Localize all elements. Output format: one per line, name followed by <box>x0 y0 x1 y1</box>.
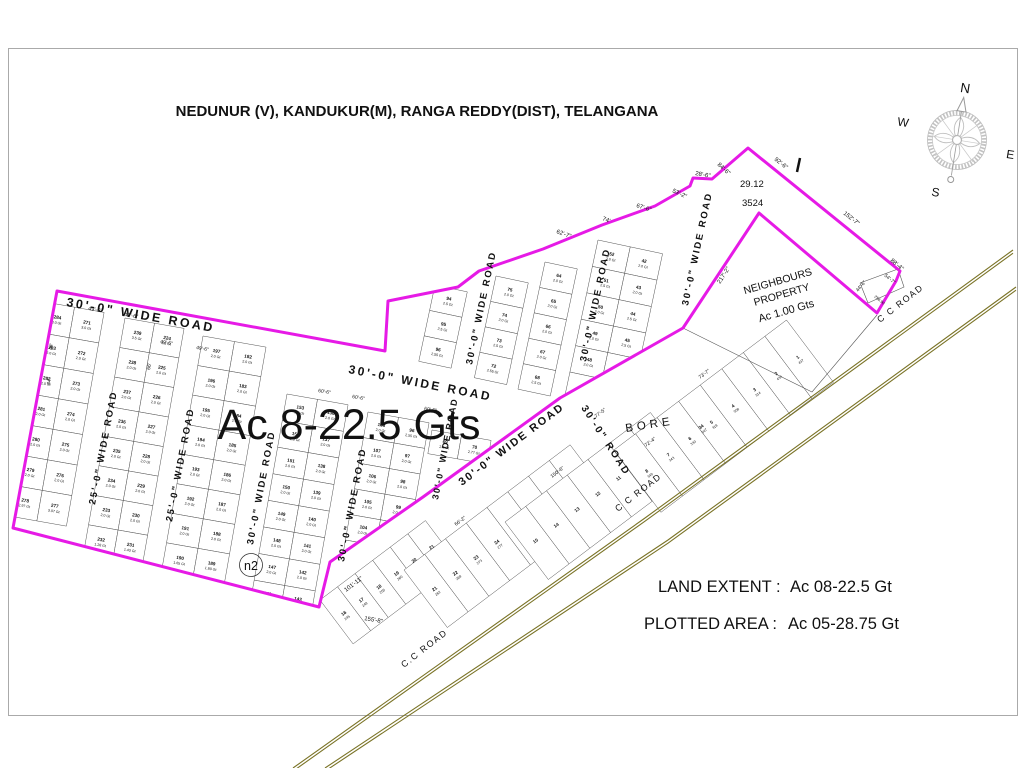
plot-cell <box>198 336 235 371</box>
plot-cell <box>203 489 240 524</box>
dimension-label: 66' <box>146 363 153 371</box>
plot-cell <box>273 447 308 479</box>
plot-cell <box>285 559 320 591</box>
plot-cell <box>115 348 150 383</box>
plot-cell <box>193 366 230 401</box>
plot-cell <box>259 527 294 559</box>
plot-cell <box>37 490 72 526</box>
land-extent-value: Ac 08-22.5 Gt <box>790 578 892 596</box>
plot-cell <box>303 453 338 485</box>
plot-cell <box>123 471 158 506</box>
plot-cell <box>299 479 334 511</box>
survey-plan-page: { "title": "NEDUNUR (V), KANDUKUR(M), RA… <box>0 0 1024 768</box>
dimension-label: 44' <box>46 378 53 386</box>
plot-cell <box>208 460 245 495</box>
total-area-overlay: Ac 8-22.5 Gts <box>218 401 481 449</box>
plot-cell <box>64 338 99 374</box>
plot-cell <box>42 460 77 496</box>
plot-cell <box>229 342 266 377</box>
plot-cell <box>198 519 235 554</box>
plot-cell <box>118 500 153 535</box>
plotted-area-label: PLOTTED AREA : <box>644 615 777 633</box>
land-extent-label: LAND EXTENT : <box>658 578 781 596</box>
plot-cell <box>53 399 88 435</box>
plot-cell <box>264 500 299 532</box>
survey-number-b: 3524 <box>742 198 763 209</box>
plot-cell <box>294 506 329 538</box>
svg-text:n2: n2 <box>244 559 258 573</box>
plot-cell <box>128 441 163 476</box>
dimension-label: 44' <box>48 343 55 351</box>
survey-number-a: 29.12 <box>740 179 764 190</box>
plot-cell <box>254 554 289 586</box>
south-tail <box>947 176 954 183</box>
plot-cell <box>58 368 93 404</box>
site-plan-canvas: 2843.0 Gt2832.0 Gt2822.0 Gt2812.0 Gt2802… <box>0 0 1024 768</box>
plot-cell <box>134 412 169 447</box>
plot-cell <box>139 382 174 417</box>
plot-cell <box>268 474 303 506</box>
page-title: NEDUNUR (V), KANDUKUR(M), RANGA REDDY(DI… <box>176 103 659 120</box>
plotted-area-value: Ac 05-28.75 Gt <box>788 615 899 633</box>
plot-cell <box>289 532 324 564</box>
